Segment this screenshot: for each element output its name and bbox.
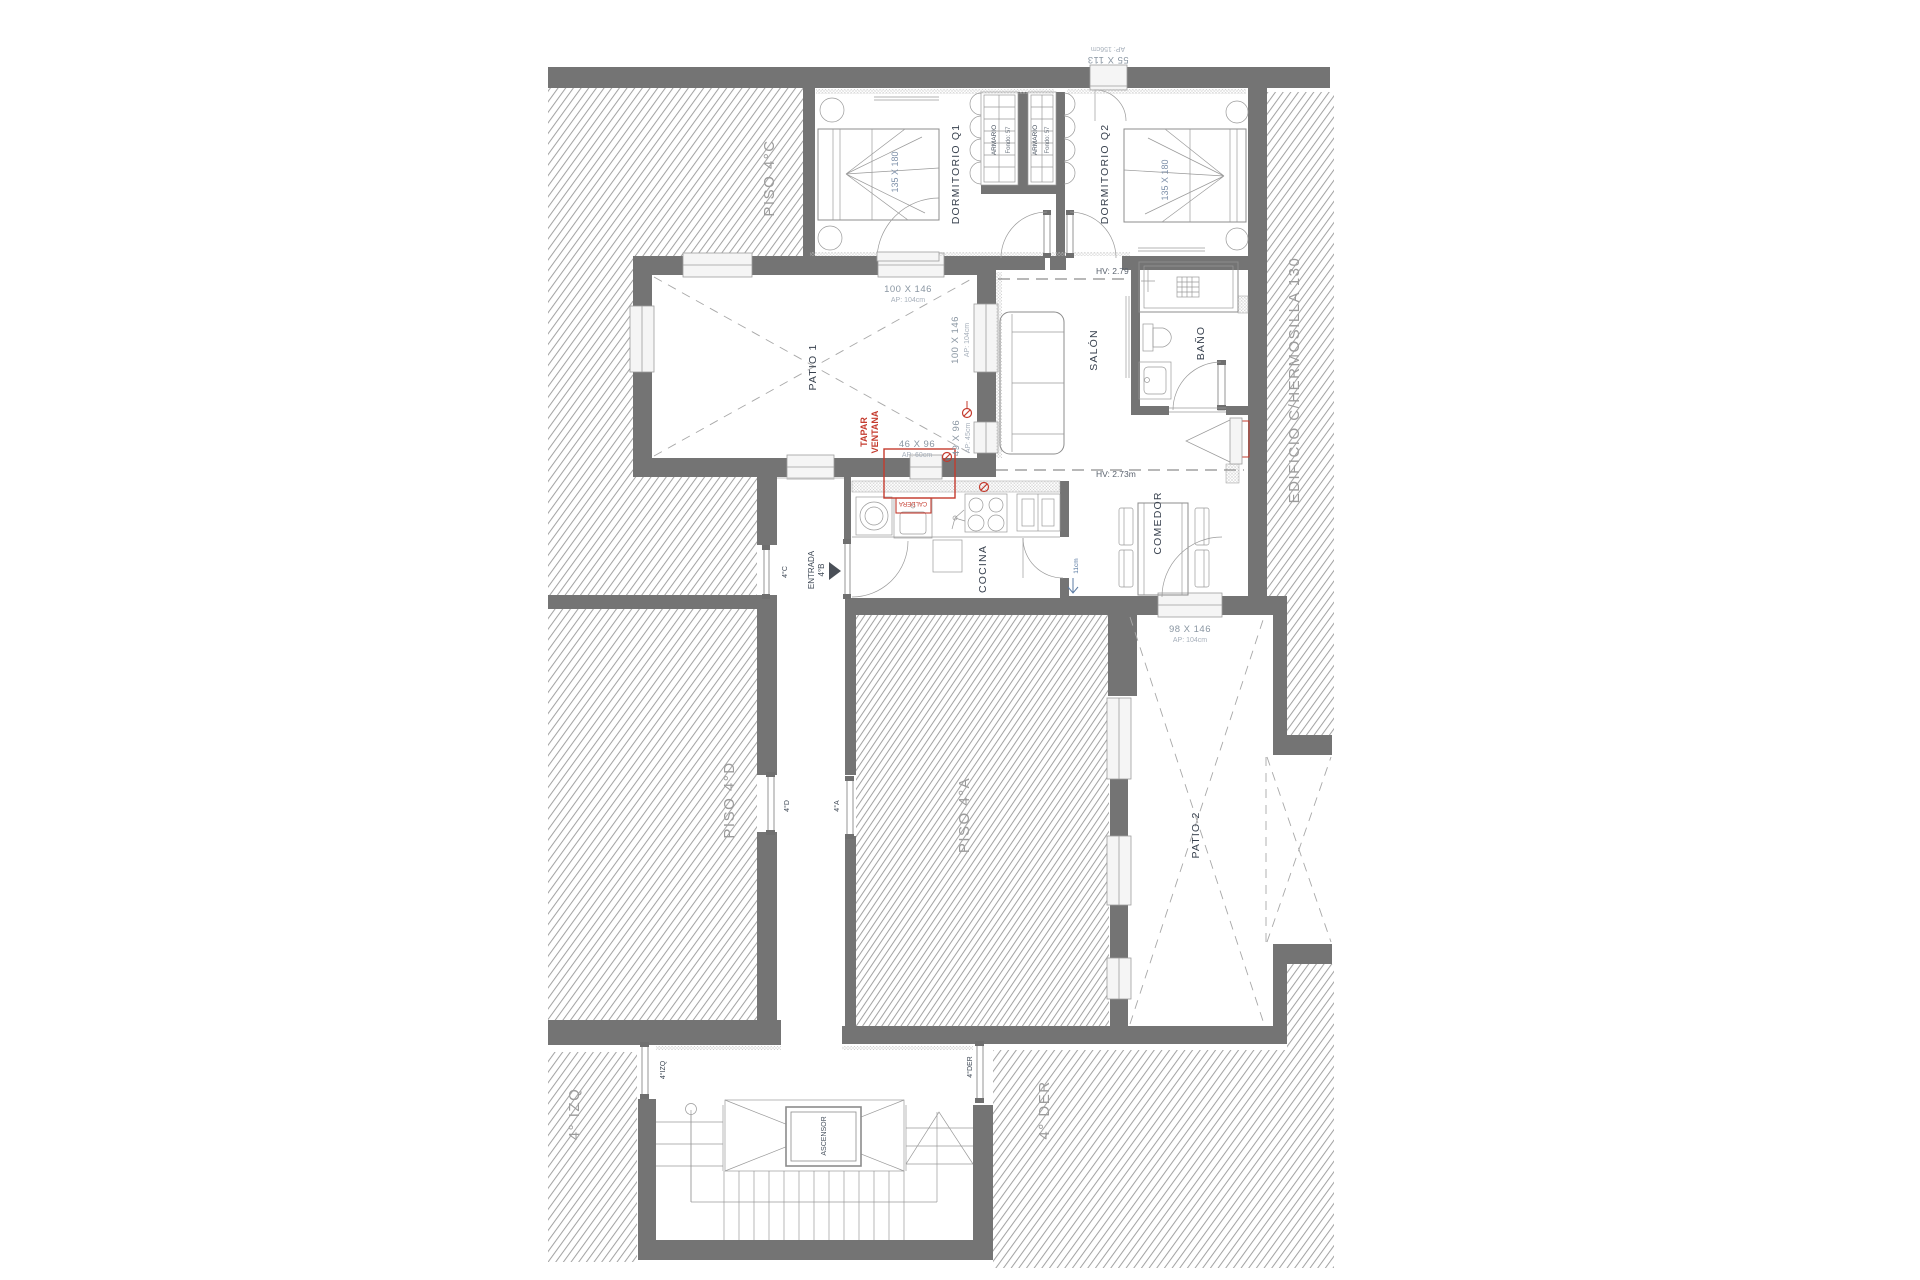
svg-text:4°B: 4°B bbox=[817, 564, 826, 577]
svg-text:TAPAR: TAPAR bbox=[859, 417, 869, 447]
svg-text:PATIO 1: PATIO 1 bbox=[807, 343, 819, 390]
svg-text:AP: 104cm: AP: 104cm bbox=[1173, 637, 1207, 644]
svg-text:4° IZQ: 4° IZQ bbox=[566, 1088, 583, 1141]
svg-text:135 X 180: 135 X 180 bbox=[890, 151, 900, 192]
svg-text:4°DER: 4°DER bbox=[966, 1056, 974, 1077]
svg-text:100 X 146: 100 X 146 bbox=[950, 316, 961, 364]
svg-text:4° DER: 4° DER bbox=[1036, 1080, 1053, 1139]
svg-text:Fondo: 57: Fondo: 57 bbox=[1006, 126, 1012, 154]
svg-text:EDIFICIO C/HERMOSILLA 130: EDIFICIO C/HERMOSILLA 130 bbox=[1286, 257, 1303, 504]
svg-text:4°C: 4°C bbox=[781, 566, 789, 578]
svg-text:11cm: 11cm bbox=[1073, 558, 1080, 573]
svg-text:PATIO 2: PATIO 2 bbox=[1190, 811, 1202, 858]
svg-text:46 X 96: 46 X 96 bbox=[899, 439, 935, 450]
svg-text:COMEDOR: COMEDOR bbox=[1152, 491, 1164, 554]
svg-text:AP: 60cm: AP: 60cm bbox=[902, 452, 933, 459]
svg-text:135 X 180: 135 X 180 bbox=[1160, 159, 1170, 200]
svg-text:100 X 146: 100 X 146 bbox=[884, 284, 932, 295]
svg-text:PISO 4°A: PISO 4°A bbox=[956, 777, 973, 853]
svg-text:SALÓN: SALÓN bbox=[1087, 329, 1100, 371]
svg-text:ENTRADA: ENTRADA bbox=[807, 550, 816, 589]
svg-text:98 X 146: 98 X 146 bbox=[1169, 624, 1211, 635]
svg-text:CALDERA: CALDERA bbox=[899, 500, 927, 506]
svg-text:PISO 4°D: PISO 4°D bbox=[721, 761, 738, 838]
svg-text:AP: 156cm: AP: 156cm bbox=[1091, 45, 1125, 52]
svg-text:ASCENSOR: ASCENSOR bbox=[821, 1116, 828, 1155]
svg-text:DORMITORIO Q2: DORMITORIO Q2 bbox=[1099, 124, 1111, 225]
svg-text:HV: 2.73m: HV: 2.73m bbox=[1096, 469, 1136, 479]
svg-text:Fondo: 57: Fondo: 57 bbox=[1045, 126, 1051, 154]
svg-text:PISO 4°C: PISO 4°C bbox=[761, 139, 778, 216]
svg-text:ARMARIO: ARMARIO bbox=[1032, 125, 1039, 155]
svg-text:ARMARIO: ARMARIO bbox=[991, 125, 998, 155]
svg-text:AP: 45cm: AP: 45cm bbox=[965, 423, 972, 454]
svg-text:49 X 96: 49 X 96 bbox=[951, 420, 962, 456]
svg-text:HV: 2.79: HV: 2.79 bbox=[1096, 266, 1129, 276]
svg-text:DORMITORIO Q1: DORMITORIO Q1 bbox=[950, 124, 962, 225]
svg-text:55 X 113: 55 X 113 bbox=[1087, 54, 1128, 65]
svg-text:VENTANA: VENTANA bbox=[870, 410, 880, 453]
svg-text:COCINA: COCINA bbox=[977, 545, 989, 593]
svg-text:4°IZQ: 4°IZQ bbox=[659, 1060, 667, 1079]
svg-text:AP: 104cm: AP: 104cm bbox=[891, 297, 925, 304]
svg-text:4°A: 4°A bbox=[833, 800, 841, 812]
svg-text:BAÑO: BAÑO bbox=[1194, 326, 1207, 361]
svg-text:4°D: 4°D bbox=[783, 800, 791, 812]
svg-text:AP: 104cm: AP: 104cm bbox=[964, 323, 971, 357]
